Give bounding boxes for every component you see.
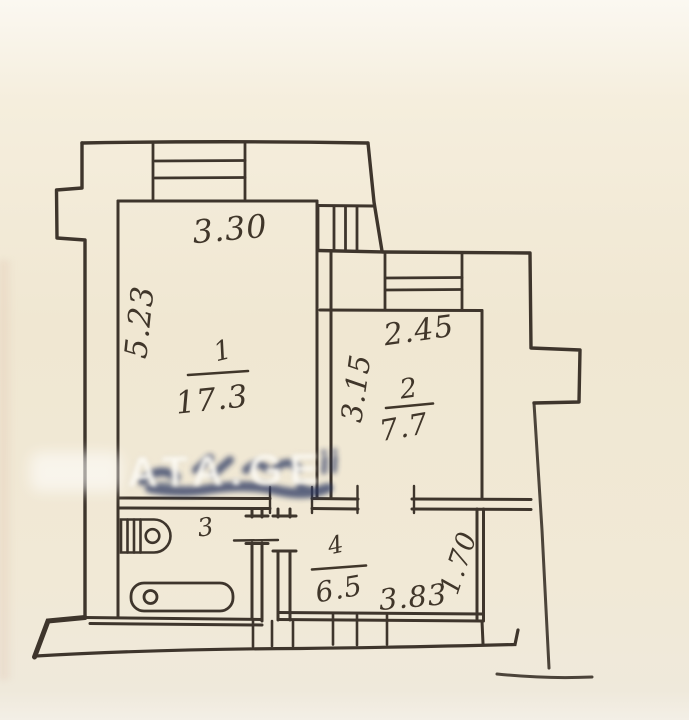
bathroom-walls — [85, 509, 268, 625]
window-room1-top — [153, 144, 245, 199]
outer-wall-right-extension — [497, 403, 592, 678]
room1-area: 17.3 — [174, 378, 250, 421]
watermark-text: ATA.GE — [127, 445, 326, 497]
outer-wall-bottom-left — [35, 618, 86, 658]
washbasin — [121, 520, 170, 553]
bathtub — [131, 583, 233, 611]
door-leaf-bathroom — [234, 540, 278, 541]
hall-wall — [118, 498, 531, 510]
window-entry-right — [318, 206, 357, 250]
room1-width-dimension: 3.30 — [191, 207, 269, 251]
window-room2-top — [385, 254, 462, 309]
floorplan-scan: 3.30 5.23 1 17.3 2.45 3.15 2 7.7 3 4 6.5… — [0, 0, 689, 720]
outer-wall-bottom — [36, 630, 518, 656]
room1-height-dimension: 5.23 — [118, 284, 161, 360]
watermark-ghost-left — [30, 452, 122, 492]
